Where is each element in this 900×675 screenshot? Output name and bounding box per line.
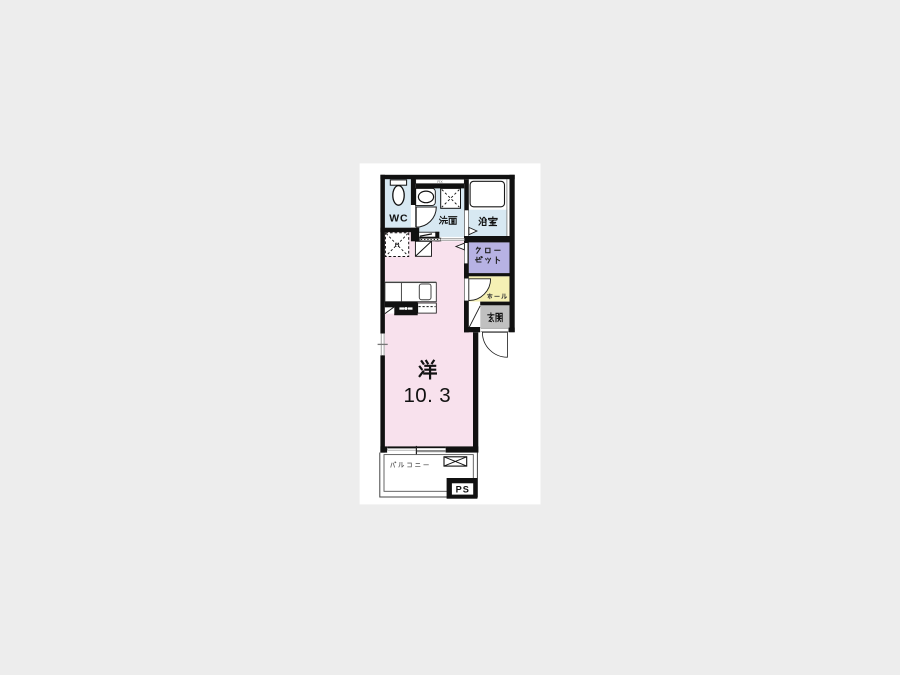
svg-text:WC: WC (389, 213, 408, 225)
svg-text:10. 3: 10. 3 (404, 384, 452, 407)
svg-text:PS: PS (456, 485, 470, 495)
svg-text:FIX: FIX (437, 180, 443, 184)
